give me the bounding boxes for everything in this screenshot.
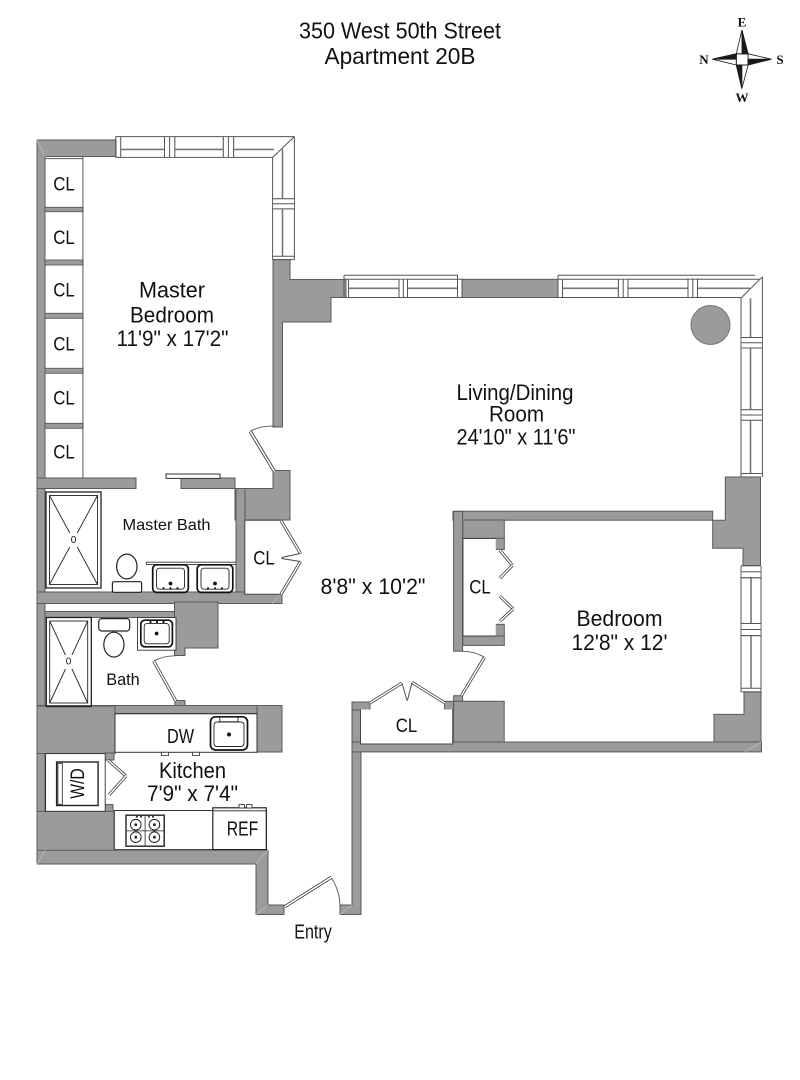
svg-text:7'9" x 7'4": 7'9" x 7'4"	[147, 781, 238, 806]
svg-text:CL: CL	[53, 334, 75, 356]
svg-text:REF: REF	[227, 819, 259, 841]
svg-text:8'8" x 10'2": 8'8" x 10'2"	[321, 574, 426, 599]
svg-text:N: N	[699, 52, 709, 67]
svg-text:0: 0	[66, 657, 72, 668]
svg-text:CL: CL	[396, 715, 418, 737]
svg-text:Entry: Entry	[294, 922, 332, 944]
svg-text:11'9" x 17'2": 11'9" x 17'2"	[117, 326, 229, 351]
svg-text:S: S	[776, 52, 783, 67]
svg-text:CL: CL	[53, 388, 75, 410]
svg-text:CL: CL	[253, 548, 275, 570]
svg-text:W: W	[736, 90, 749, 105]
svg-text:Apartment 20B: Apartment 20B	[325, 43, 476, 69]
svg-text:W/D: W/D	[68, 768, 89, 799]
svg-text:Master Bath: Master Bath	[123, 517, 211, 534]
svg-text:CL: CL	[53, 280, 75, 302]
svg-text:24'10" x 11'6": 24'10" x 11'6"	[457, 425, 576, 450]
svg-text:Bedroom: Bedroom	[577, 606, 663, 631]
svg-text:CL: CL	[53, 442, 75, 464]
svg-text:Bedroom: Bedroom	[130, 303, 214, 328]
svg-text:0: 0	[71, 535, 77, 546]
svg-text:Room: Room	[489, 402, 544, 427]
svg-text:CL: CL	[53, 174, 75, 196]
svg-text:Master: Master	[139, 278, 205, 303]
svg-text:Bath: Bath	[106, 670, 140, 689]
svg-text:Kitchen: Kitchen	[159, 758, 226, 783]
svg-text:CL: CL	[53, 227, 75, 249]
svg-text:DW: DW	[167, 726, 194, 748]
svg-text:CL: CL	[469, 577, 491, 599]
svg-text:12'8" x 12': 12'8" x 12'	[572, 630, 668, 655]
svg-text:350 West 50th Street: 350 West 50th Street	[299, 18, 501, 44]
svg-text:E: E	[738, 15, 747, 30]
